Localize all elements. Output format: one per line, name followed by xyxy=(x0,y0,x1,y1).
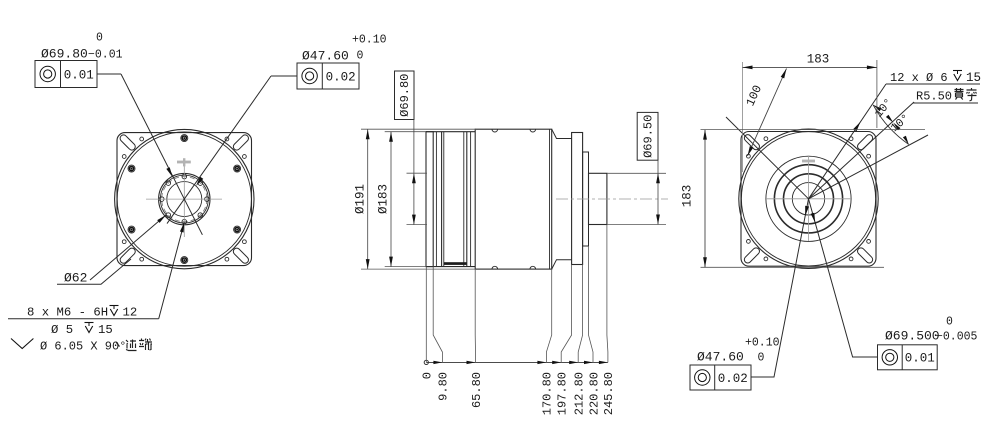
svg-text:15: 15 xyxy=(966,71,981,85)
svg-text:Ø47.60: Ø47.60 xyxy=(697,350,744,365)
svg-text:Ø191: Ø191 xyxy=(353,184,367,214)
svg-text:9.80: 9.80 xyxy=(437,372,451,401)
svg-text:212.80: 212.80 xyxy=(573,372,587,415)
svg-text:8 x M6 - 6H: 8 x M6 - 6H xyxy=(27,306,108,320)
svg-text:+0.10: +0.10 xyxy=(745,337,780,350)
svg-text:Ø69.80: Ø69.80 xyxy=(398,74,412,117)
svg-text:0.02: 0.02 xyxy=(718,372,748,386)
svg-text:197.80: 197.80 xyxy=(556,372,570,415)
svg-text:0.02: 0.02 xyxy=(326,70,356,84)
svg-text:0.01: 0.01 xyxy=(64,68,94,82)
svg-text:183: 183 xyxy=(681,185,695,208)
svg-text:12 x Ø 6: 12 x Ø 6 xyxy=(890,71,948,85)
svg-text:Ø 5: Ø 5 xyxy=(51,323,73,337)
svg-text:Ø69.500: Ø69.500 xyxy=(885,329,940,344)
svg-text:−0.005: −0.005 xyxy=(936,331,978,344)
svg-text:0: 0 xyxy=(421,372,435,379)
svg-text:0: 0 xyxy=(946,316,953,329)
svg-text:65.80: 65.80 xyxy=(470,372,484,408)
svg-text:183: 183 xyxy=(807,53,830,67)
svg-text:0.01: 0.01 xyxy=(905,352,935,366)
svg-text:12: 12 xyxy=(123,306,138,320)
svg-text:Ø47.60: Ø47.60 xyxy=(302,49,349,64)
svg-text:0: 0 xyxy=(96,32,103,45)
svg-text:Ø69.50: Ø69.50 xyxy=(642,115,656,158)
svg-text:245.80: 245.80 xyxy=(602,372,616,415)
svg-text:0: 0 xyxy=(758,352,765,365)
svg-text:15: 15 xyxy=(98,323,113,337)
svg-text:R5.50: R5.50 xyxy=(916,90,952,104)
svg-text:Ø62: Ø62 xyxy=(64,271,87,286)
svg-text:−0.01: −0.01 xyxy=(88,49,123,62)
svg-text:170.80: 170.80 xyxy=(541,372,555,415)
svg-text:220.80: 220.80 xyxy=(587,372,601,415)
svg-text:+0.10: +0.10 xyxy=(352,34,387,47)
svg-text:Ø69.80: Ø69.80 xyxy=(41,47,88,62)
svg-text:Ø 6.05 X 90°: Ø 6.05 X 90° xyxy=(40,340,126,354)
svg-text:Ø183: Ø183 xyxy=(377,184,391,214)
svg-text:0: 0 xyxy=(357,50,364,63)
